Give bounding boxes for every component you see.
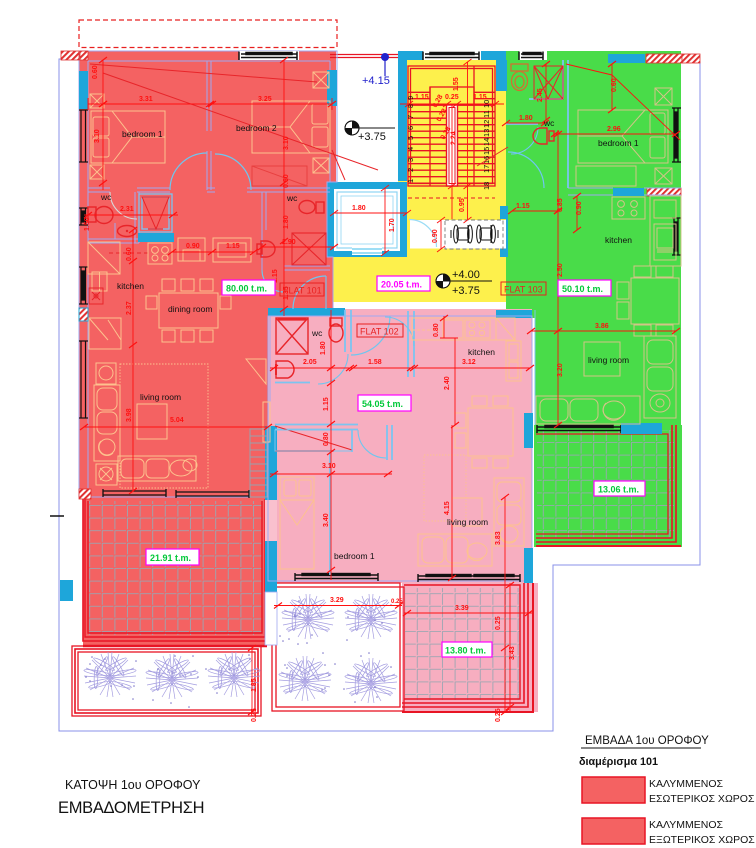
svg-text:ΚΑΛΥΜΜΕΝΟΣ: ΚΑΛΥΜΜΕΝΟΣ (649, 778, 723, 790)
svg-text:FLAT 103: FLAT 103 (504, 285, 543, 295)
svg-text:kitchen: kitchen (468, 347, 495, 357)
svg-text:wc: wc (543, 118, 555, 128)
svg-text:living room: living room (140, 392, 181, 402)
svg-text:ΚΑΤΟΨΗ 1ου ΟΡΟΦΟΥ: ΚΑΤΟΨΗ 1ου ΟΡΟΦΟΥ (65, 778, 201, 792)
svg-text:3.10: 3.10 (322, 463, 336, 470)
svg-text:0.25: 0.25 (391, 599, 403, 605)
svg-text:18: 18 (482, 182, 491, 190)
svg-text:2: 2 (406, 168, 415, 172)
svg-text:3.12: 3.12 (462, 359, 476, 366)
svg-text:0.80: 0.80 (433, 323, 440, 337)
svg-text:3.31: 3.31 (139, 96, 153, 103)
svg-text:ΕΞΩΤΕΡΙΚΟΣ ΧΩΡΟΣ: ΕΞΩΤΕΡΙΚΟΣ ΧΩΡΟΣ (649, 834, 755, 846)
svg-text:kitchen: kitchen (605, 235, 632, 245)
svg-text:3.20: 3.20 (557, 363, 564, 377)
svg-text:FLAT 102: FLAT 102 (360, 327, 399, 337)
svg-text:0.90: 0.90 (432, 229, 439, 243)
svg-text:bedroom 1: bedroom 1 (122, 129, 163, 139)
svg-text:1.80: 1.80 (320, 341, 327, 355)
svg-text:50.10 t.m.: 50.10 t.m. (562, 284, 603, 294)
svg-text:4: 4 (406, 147, 415, 151)
svg-text:54.05 t.m.: 54.05 t.m. (362, 399, 403, 409)
svg-text:0.90: 0.90 (186, 243, 200, 250)
svg-text:14: 14 (482, 138, 491, 146)
svg-text:15: 15 (482, 147, 491, 155)
svg-text:+3.75: +3.75 (452, 285, 480, 297)
svg-text:2.45: 2.45 (537, 88, 544, 102)
svg-text:bedroom 1: bedroom 1 (598, 138, 639, 148)
svg-text:1.15: 1.15 (473, 94, 487, 101)
svg-text:7: 7 (406, 115, 415, 119)
svg-text:4.15: 4.15 (444, 501, 451, 515)
svg-text:2.05: 2.05 (303, 359, 317, 366)
svg-text:living room: living room (588, 355, 629, 365)
svg-text:1.80: 1.80 (352, 205, 366, 212)
svg-text:3.43: 3.43 (509, 646, 516, 660)
svg-text:11: 11 (482, 110, 491, 118)
svg-text:ΚΑΛΥΜΜΕΝΟΣ: ΚΑΛΥΜΜΕΝΟΣ (649, 819, 723, 831)
svg-text:3.98: 3.98 (126, 408, 133, 422)
svg-text:0.60: 0.60 (283, 174, 290, 188)
svg-text:0.25: 0.25 (251, 708, 258, 722)
svg-text:3.25: 3.25 (258, 96, 272, 103)
svg-text:dining room: dining room (168, 304, 212, 314)
svg-text:kitchen: kitchen (117, 281, 144, 291)
svg-text:FLAT 101: FLAT 101 (283, 286, 322, 296)
svg-text:8: 8 (406, 104, 415, 108)
svg-text:1.70: 1.70 (389, 218, 396, 232)
svg-text:1.80: 1.80 (519, 115, 533, 122)
svg-text:1.15: 1.15 (516, 203, 530, 210)
svg-text:ΕΜΒΑΔΟΜΕΤΡΗΣΗ: ΕΜΒΑΔΟΜΕΤΡΗΣΗ (58, 799, 204, 817)
svg-text:διαμέρισμα 101: διαμέρισμα 101 (579, 756, 658, 768)
svg-text:5: 5 (406, 136, 415, 140)
svg-text:wc: wc (286, 193, 298, 203)
svg-text:1.55: 1.55 (453, 77, 460, 91)
svg-text:ΕΣΩΤΕΡΙΚΟΣ ΧΩΡΟΣ: ΕΣΩΤΕΡΙΚΟΣ ΧΩΡΟΣ (649, 793, 755, 805)
svg-text:2.90: 2.90 (282, 239, 296, 246)
svg-text:9: 9 (406, 96, 415, 100)
svg-text:5.04: 5.04 (170, 417, 184, 424)
svg-text:1.85: 1.85 (251, 678, 258, 692)
svg-text:0.25: 0.25 (495, 616, 502, 630)
svg-text:wc: wc (100, 192, 112, 202)
svg-text:+4.15: +4.15 (362, 75, 390, 87)
svg-text:21.91 t.m.: 21.91 t.m. (150, 553, 191, 563)
svg-text:1.15: 1.15 (226, 243, 240, 250)
svg-text:17: 17 (482, 165, 491, 173)
svg-text:0.60: 0.60 (92, 65, 99, 79)
svg-text:1.58: 1.58 (368, 359, 382, 366)
svg-text:1.80: 1.80 (283, 215, 290, 229)
svg-text:wc: wc (311, 328, 323, 338)
svg-text:+3.75: +3.75 (358, 131, 386, 143)
svg-text:1.15: 1.15 (323, 397, 330, 411)
svg-text:13: 13 (482, 129, 491, 137)
svg-text:1: 1 (406, 179, 415, 183)
svg-text:80.00 t.m.: 80.00 t.m. (226, 284, 267, 294)
svg-text:2.50: 2.50 (557, 263, 564, 277)
svg-text:2.31: 2.31 (120, 206, 134, 213)
svg-text:2.40: 2.40 (444, 376, 451, 390)
svg-text:3.86: 3.86 (595, 323, 609, 330)
svg-text:3: 3 (406, 158, 415, 162)
svg-text:0.90: 0.90 (576, 201, 583, 215)
svg-text:13.80 t.m.: 13.80 t.m. (445, 646, 486, 656)
svg-text:1.50: 1.50 (84, 217, 91, 231)
svg-text:3.29: 3.29 (330, 597, 344, 604)
svg-text:bedroom 1: bedroom 1 (334, 551, 375, 561)
svg-text:0.80: 0.80 (323, 432, 330, 446)
svg-text:0.25: 0.25 (495, 708, 502, 722)
svg-text:0.60: 0.60 (126, 247, 133, 261)
svg-text:3.10: 3.10 (283, 136, 290, 150)
svg-text:0.60: 0.60 (611, 78, 618, 92)
svg-text:3.10: 3.10 (94, 129, 101, 143)
svg-text:1.15: 1.15 (415, 94, 429, 101)
svg-text:6: 6 (406, 126, 415, 130)
svg-text:0.95: 0.95 (459, 198, 466, 212)
svg-text:12: 12 (482, 120, 491, 128)
svg-text:20.05 t.m.: 20.05 t.m. (381, 280, 422, 290)
svg-text:0.85: 0.85 (557, 198, 564, 212)
svg-text:+4.00: +4.00 (452, 269, 480, 281)
svg-text:13.06 t.m.: 13.06 t.m. (598, 485, 639, 495)
svg-text:3.40: 3.40 (323, 513, 330, 527)
svg-text:ΕΜΒΑΔΑ 1ου ΟΡΟΦΟΥ: ΕΜΒΑΔΑ 1ου ΟΡΟΦΟΥ (585, 735, 709, 747)
svg-text:2.96: 2.96 (607, 126, 621, 133)
svg-text:2.37: 2.37 (126, 301, 133, 315)
svg-text:3.83: 3.83 (495, 531, 502, 545)
svg-text:bedroom 2: bedroom 2 (236, 123, 277, 133)
svg-text:3.39: 3.39 (455, 605, 469, 612)
svg-text:living room: living room (447, 517, 488, 527)
svg-text:0.25: 0.25 (445, 94, 459, 101)
